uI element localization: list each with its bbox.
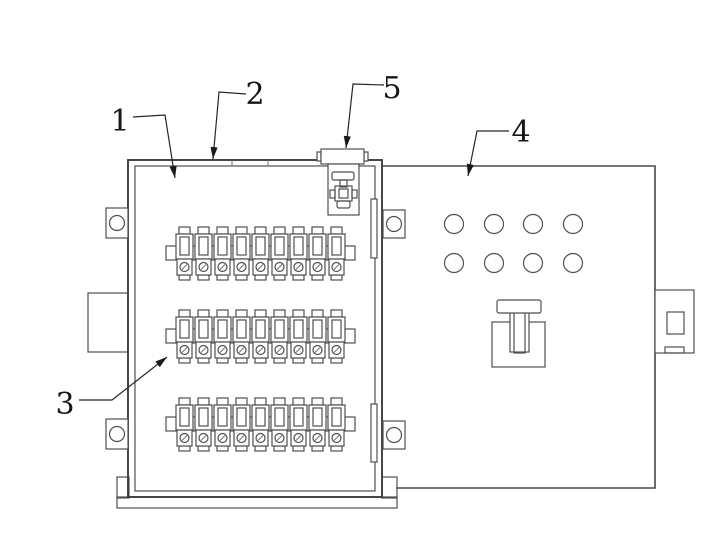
module-top-tab	[331, 398, 342, 405]
module-bottom-tab	[198, 446, 209, 451]
module-top-tab	[236, 310, 247, 317]
module-bottom-tab	[236, 275, 247, 280]
module-bottom-tab	[312, 446, 323, 451]
terminal-module	[252, 227, 269, 280]
module-bottom-tab	[255, 358, 266, 363]
terminal-module	[233, 227, 250, 280]
module-top-tab	[293, 310, 304, 317]
base-band	[117, 497, 397, 508]
terminal-strip-row	[166, 227, 355, 280]
module-top-tab	[255, 227, 266, 234]
terminal-module	[328, 227, 345, 280]
module-top-tab	[179, 227, 190, 234]
callout-label: 4	[511, 115, 530, 150]
module-top-tab	[198, 310, 209, 317]
technical-drawing: 12345	[0, 0, 727, 550]
leader-line	[468, 131, 509, 176]
terminal-module	[309, 398, 326, 451]
module-top-tab	[236, 398, 247, 405]
cable-clamp	[317, 149, 368, 215]
callout-4: 4	[468, 115, 531, 176]
vent-hole	[485, 254, 504, 273]
terminal-module	[328, 398, 345, 451]
leader-line	[213, 92, 246, 159]
terminal-module	[195, 398, 212, 451]
module-top-tab	[198, 227, 209, 234]
module-bottom-tab	[198, 275, 209, 280]
module-bottom-tab	[312, 358, 323, 363]
terminal-module	[214, 398, 231, 451]
terminal-strip-row	[166, 398, 355, 451]
terminal-module	[252, 398, 269, 451]
mounting-lug	[383, 421, 405, 449]
mounting-lug	[106, 208, 128, 238]
terminal-module	[233, 398, 250, 451]
module-bottom-tab	[255, 275, 266, 280]
terminal-module	[195, 310, 212, 363]
module-top-tab	[217, 398, 228, 405]
vent-hole	[564, 254, 583, 273]
terminal-module	[214, 310, 231, 363]
vent-hole	[485, 215, 504, 234]
vent-hole	[564, 215, 583, 234]
hinge-bar	[371, 199, 377, 258]
module-top-tab	[217, 310, 228, 317]
callout-5: 5	[346, 71, 402, 148]
module-top-tab	[331, 227, 342, 234]
handle-bar	[497, 300, 541, 313]
terminal-module	[309, 227, 326, 280]
leader-line	[79, 357, 167, 400]
clamp-tab	[317, 152, 321, 161]
clamp-tab	[364, 152, 368, 161]
module-top-tab	[236, 227, 247, 234]
module-bottom-tab	[217, 358, 228, 363]
vent-hole	[445, 254, 464, 273]
vent-hole	[445, 215, 464, 234]
module-top-tab	[312, 227, 323, 234]
module-bottom-tab	[274, 446, 285, 451]
vent-hole	[524, 215, 543, 234]
module-bottom-tab	[331, 446, 342, 451]
terminal-module	[176, 227, 193, 280]
module-top-tab	[255, 310, 266, 317]
module-bottom-tab	[179, 446, 190, 451]
cable-entry-flange	[88, 293, 128, 352]
terminal-module	[195, 227, 212, 280]
module-bottom-tab	[236, 446, 247, 451]
leader-line	[346, 84, 384, 148]
module-bottom-tab	[312, 275, 323, 280]
terminal-module	[328, 310, 345, 363]
module-bottom-tab	[255, 446, 266, 451]
mounting-lug	[106, 419, 128, 449]
terminal-module	[176, 310, 193, 363]
mounting-lug	[383, 210, 405, 238]
terminal-module	[176, 398, 193, 451]
terminal-module	[309, 310, 326, 363]
callout-2: 2	[213, 77, 265, 159]
module-bottom-tab	[179, 358, 190, 363]
module-top-tab	[179, 398, 190, 405]
figure-canvas: 12345	[0, 0, 727, 550]
latch-bracket	[655, 290, 694, 353]
terminal-module	[290, 398, 307, 451]
module-top-tab	[198, 398, 209, 405]
vent-hole	[524, 254, 543, 273]
terminal-module	[271, 227, 288, 280]
mounting-foot	[382, 477, 397, 498]
module-bottom-tab	[236, 358, 247, 363]
terminal-module	[252, 310, 269, 363]
module-top-tab	[293, 227, 304, 234]
callout-3: 3	[55, 357, 167, 422]
terminal-module	[290, 227, 307, 280]
callout-1: 1	[110, 104, 175, 178]
terminal-module	[233, 310, 250, 363]
module-top-tab	[179, 310, 190, 317]
terminal-module	[290, 310, 307, 363]
callout-label: 2	[245, 77, 264, 112]
terminal-module	[214, 227, 231, 280]
leader-line	[133, 115, 175, 178]
terminal-module	[271, 310, 288, 363]
callout-label: 5	[382, 71, 401, 106]
module-bottom-tab	[331, 358, 342, 363]
module-top-tab	[255, 398, 266, 405]
module-bottom-tab	[293, 275, 304, 280]
module-top-tab	[331, 310, 342, 317]
module-top-tab	[312, 310, 323, 317]
terminal-strip-row	[166, 310, 355, 363]
hinge-bar	[371, 404, 377, 462]
terminal-module	[271, 398, 288, 451]
module-bottom-tab	[274, 358, 285, 363]
module-bottom-tab	[198, 358, 209, 363]
clamp-bar	[321, 149, 364, 164]
side-panel	[382, 166, 694, 488]
module-bottom-tab	[331, 275, 342, 280]
module-top-tab	[274, 398, 285, 405]
module-bottom-tab	[293, 446, 304, 451]
module-bottom-tab	[217, 446, 228, 451]
callout-label: 1	[110, 104, 129, 139]
callout-label: 3	[55, 387, 74, 422]
module-bottom-tab	[179, 275, 190, 280]
module-bottom-tab	[293, 358, 304, 363]
module-bottom-tab	[274, 275, 285, 280]
module-top-tab	[274, 310, 285, 317]
module-top-tab	[217, 227, 228, 234]
module-top-tab	[312, 398, 323, 405]
module-top-tab	[274, 227, 285, 234]
module-top-tab	[293, 398, 304, 405]
module-bottom-tab	[217, 275, 228, 280]
